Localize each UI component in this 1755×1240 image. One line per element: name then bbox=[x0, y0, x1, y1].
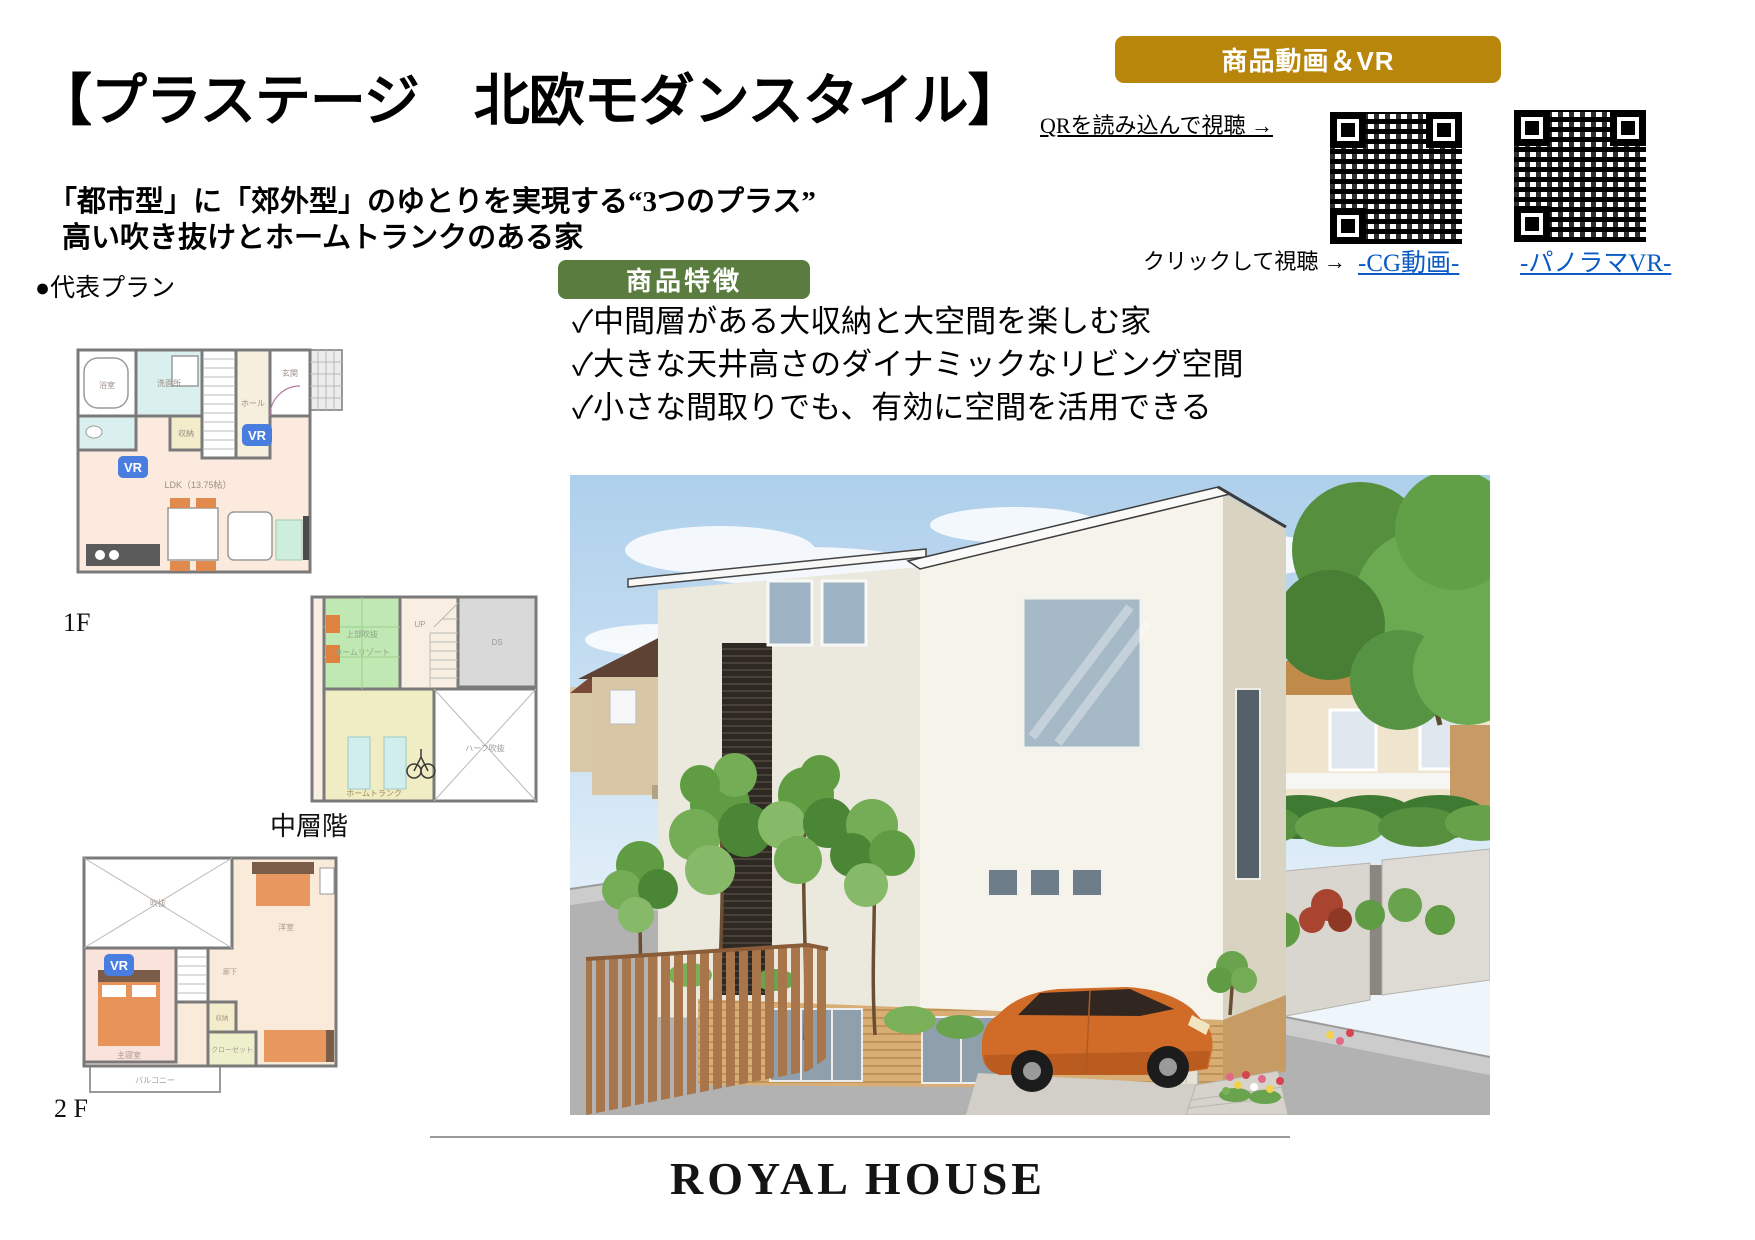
svg-text:収納: 収納 bbox=[216, 1013, 229, 1022]
feature-list: ✓中間層がある大収納と大空間を楽しむ家 ✓大きな天井高さのダイナミックなリビング… bbox=[572, 300, 1244, 429]
svg-text:VR: VR bbox=[248, 428, 267, 443]
svg-text:ホームリゾート: ホームリゾート bbox=[334, 648, 390, 657]
house-rendering bbox=[570, 475, 1490, 1115]
qr-finder-icon bbox=[1514, 206, 1550, 242]
svg-text:ハーフ吹抜: ハーフ吹抜 bbox=[465, 743, 505, 753]
bed-west-bottom bbox=[264, 1030, 334, 1062]
cg-video-link[interactable]: -CG動画- bbox=[1358, 243, 1459, 279]
svg-text:ホームトランク: ホームトランク bbox=[346, 789, 402, 798]
qr-code-panorama-vr bbox=[1514, 110, 1646, 242]
feature-item: ✓小さな間取りでも、有効に空間を活用できる bbox=[572, 386, 1244, 429]
svg-text:玄関: 玄関 bbox=[282, 368, 298, 378]
representative-plan-label: ●代表プラン bbox=[35, 268, 175, 304]
svg-text:収納: 収納 bbox=[178, 428, 194, 438]
footer-divider bbox=[430, 1136, 1290, 1138]
qr-finder-icon bbox=[1514, 110, 1550, 146]
floor-plan-2f: 吹抜 洋室 廊下 収納 クローゼット バルコニー 主寝室 VR bbox=[80, 852, 342, 1097]
svg-text:主寝室: 主寝室 bbox=[117, 1050, 141, 1060]
svg-text:バルコニー: バルコニー bbox=[135, 1076, 175, 1085]
qr-finder-icon bbox=[1610, 110, 1646, 146]
svg-text:上部吹抜: 上部吹抜 bbox=[346, 629, 378, 639]
floor-plan-middle: 上部吹抜 ホームリゾート UP DS ホームトランク ハーフ吹抜 bbox=[308, 589, 540, 807]
svg-text:DS: DS bbox=[491, 638, 502, 647]
media-banner: 商品動画＆VR bbox=[1115, 36, 1501, 83]
royal-house-logo: ROYAL HOUSE bbox=[570, 1152, 1146, 1205]
product-sheet: 【プラステージ 北欧モダンスタイル】 「都市型」に「郊外型」のゆとりを実現する“… bbox=[0, 0, 1755, 1240]
svg-text:LDK（13.75帖）: LDK（13.75帖） bbox=[164, 479, 231, 490]
floor-label-1f: 1F bbox=[63, 608, 90, 638]
svg-text:クローゼット: クローゼット bbox=[211, 1045, 253, 1054]
features-banner: 商品特徴 bbox=[558, 260, 810, 299]
subtitle-line2: 高い吹き抜けとホームトランクのある家 bbox=[62, 214, 583, 256]
floor-plan-1f: 浴室 洗面所 ホール 玄関 収納 LDK（13.75帖） VR VR bbox=[70, 346, 346, 578]
svg-text:吹抜: 吹抜 bbox=[150, 898, 166, 908]
qr-scan-caption: QRを読み込んで視聴 → bbox=[1040, 108, 1273, 140]
svg-text:洋室: 洋室 bbox=[278, 922, 294, 932]
floor-label-middle: 中層階 bbox=[270, 806, 348, 843]
svg-text:洗面所: 洗面所 bbox=[157, 378, 181, 388]
panorama-vr-link[interactable]: -パノラマVR- bbox=[1520, 243, 1671, 279]
qr-code-cg-video bbox=[1330, 112, 1462, 244]
svg-text:UP: UP bbox=[414, 620, 425, 629]
qr-finder-icon bbox=[1330, 208, 1366, 244]
svg-text:廊下: 廊下 bbox=[223, 967, 237, 976]
vr-badge[interactable]: VR bbox=[242, 424, 272, 446]
page-title: 【プラステージ 北欧モダンスタイル】 bbox=[36, 56, 1023, 137]
svg-text:ホール: ホール bbox=[241, 399, 265, 408]
bed-master bbox=[98, 970, 160, 1046]
vr-badge[interactable]: VR bbox=[118, 456, 148, 478]
svg-text:浴室: 浴室 bbox=[99, 380, 115, 390]
svg-text:VR: VR bbox=[124, 460, 143, 475]
svg-text:VR: VR bbox=[110, 958, 129, 973]
qr-finder-icon bbox=[1426, 112, 1462, 148]
qr-finder-icon bbox=[1330, 112, 1366, 148]
floor-label-2f: 2 F bbox=[54, 1094, 88, 1124]
feature-item: ✓大きな天井高さのダイナミックなリビング空間 bbox=[572, 343, 1244, 386]
click-caption: クリックして視聴 → bbox=[1143, 244, 1346, 276]
vr-badge[interactable]: VR bbox=[104, 954, 134, 976]
feature-item: ✓中間層がある大収納と大空間を楽しむ家 bbox=[572, 300, 1244, 343]
